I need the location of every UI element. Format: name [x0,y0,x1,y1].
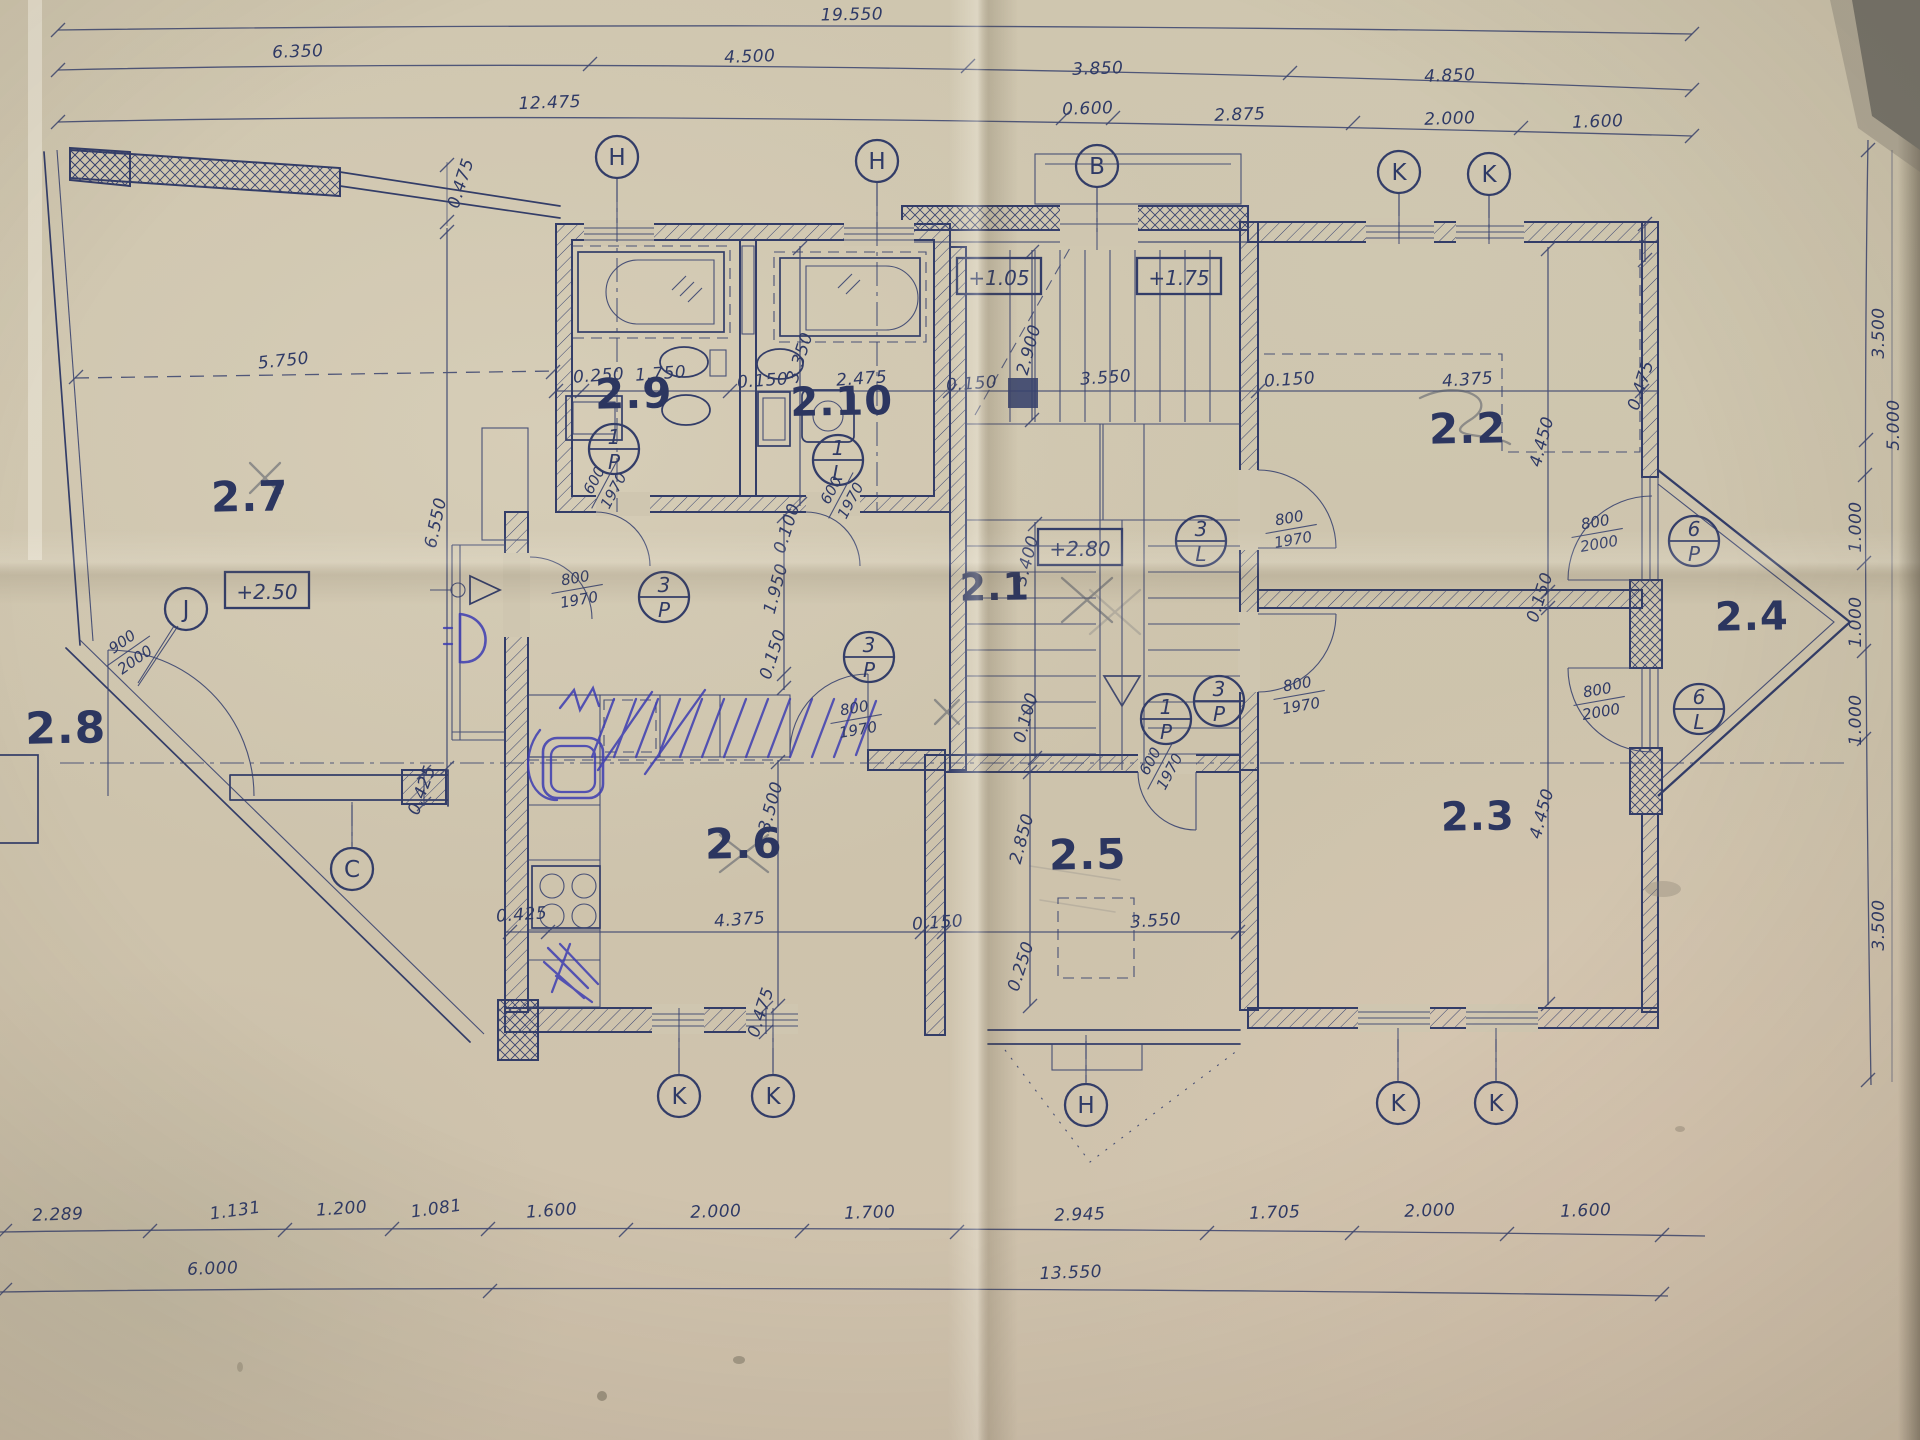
floor-plan-drawing: 19.5506.3504.5003.8504.85012.4750.6002.8… [0,0,1920,1440]
floor-plan-photo: 19.5506.3504.5003.8504.85012.4750.6002.8… [0,0,1920,1440]
photo-artifacts [0,0,1920,1440]
